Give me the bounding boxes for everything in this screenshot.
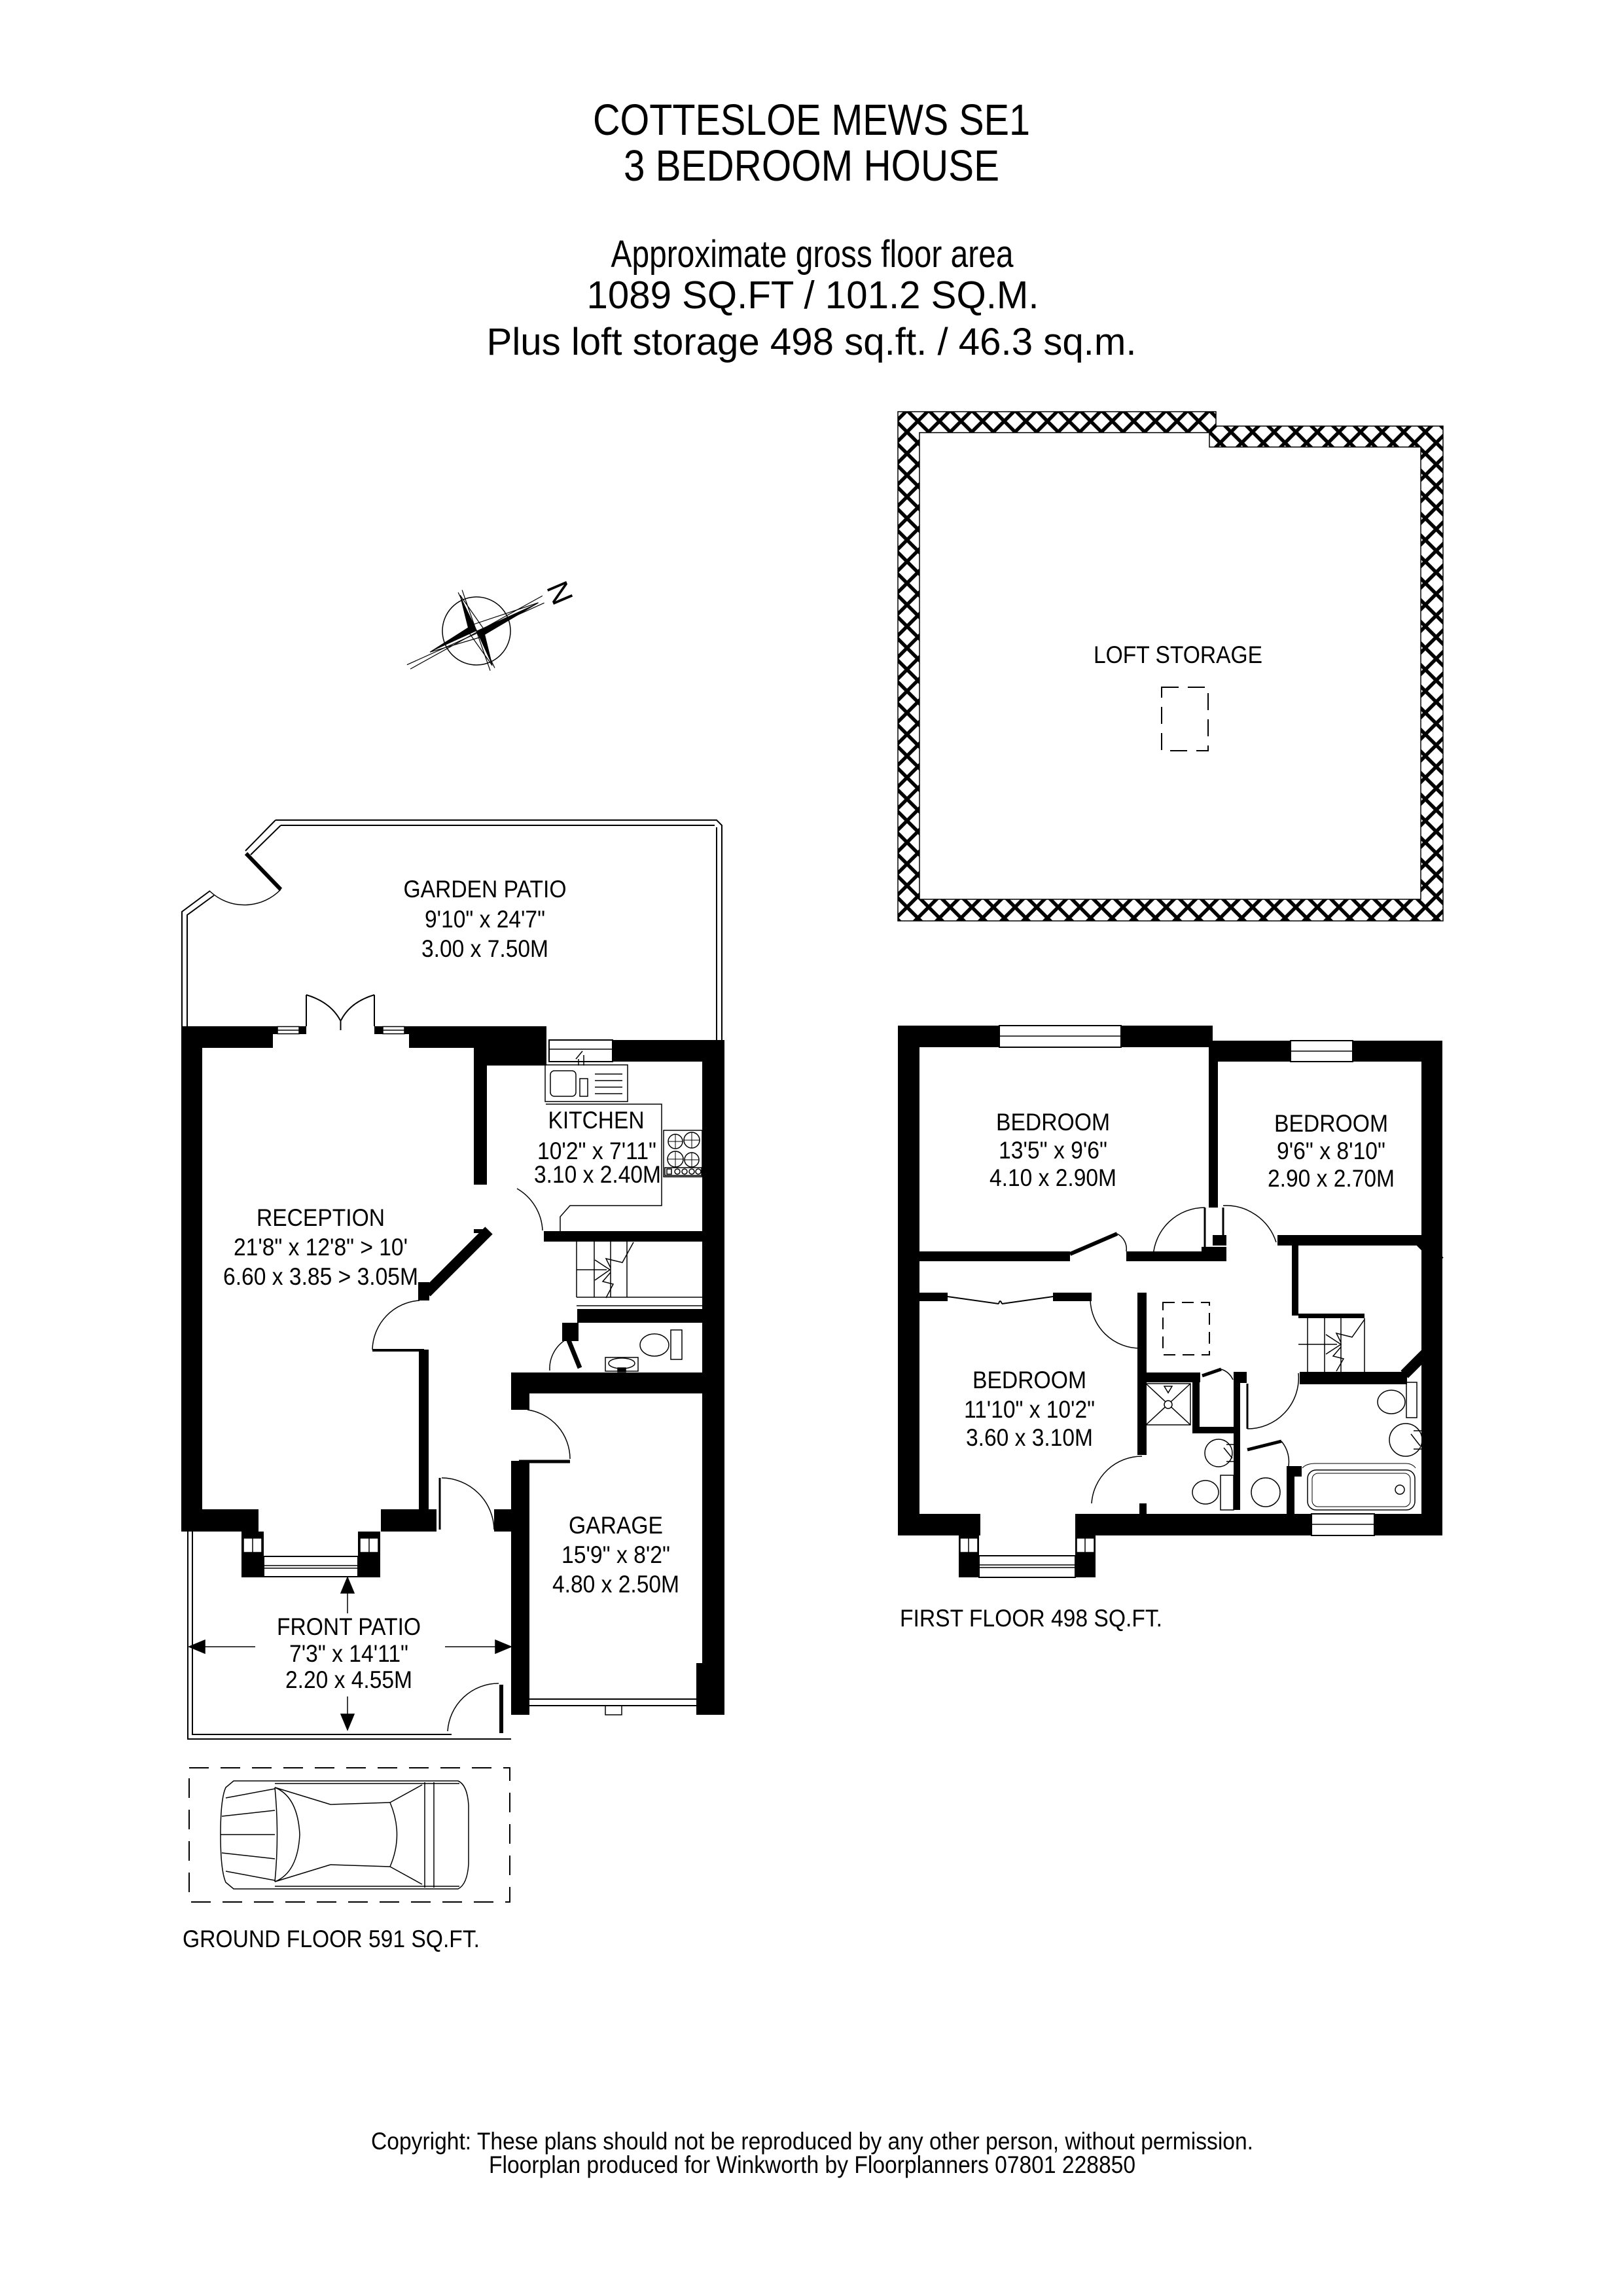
- svg-text:BEDROOM: BEDROOM: [972, 1366, 1086, 1393]
- svg-text:3.60 x 3.10M: 3.60 x 3.10M: [966, 1424, 1093, 1451]
- svg-text:3.00 x 7.50M: 3.00 x 7.50M: [421, 935, 548, 962]
- svg-text:COTTESLOE MEWS SE1: COTTESLOE MEWS SE1: [593, 96, 1030, 145]
- svg-text:13'5" x 9'6": 13'5" x 9'6": [999, 1136, 1107, 1164]
- svg-text:BEDROOM: BEDROOM: [996, 1108, 1110, 1136]
- svg-text:1089 SQ.FT / 101.2 SQ.M.: 1089 SQ.FT / 101.2 SQ.M.: [587, 273, 1039, 317]
- svg-text:3 BEDROOM HOUSE: 3 BEDROOM HOUSE: [624, 141, 999, 190]
- svg-text:2.20 x 4.55M: 2.20 x 4.55M: [285, 1666, 412, 1693]
- svg-text:9'10" x 24'7": 9'10" x 24'7": [425, 905, 545, 933]
- svg-text:6.60 x 3.85 > 3.05M: 6.60 x 3.85 > 3.05M: [223, 1263, 418, 1290]
- svg-text:21'8" x 12'8" > 10': 21'8" x 12'8" > 10': [234, 1233, 408, 1261]
- svg-text:RECEPTION: RECEPTION: [257, 1204, 385, 1231]
- svg-text:11'10" x 10'2": 11'10" x 10'2": [964, 1395, 1095, 1423]
- svg-text:3.10 x 2.40M: 3.10 x 2.40M: [534, 1160, 661, 1188]
- svg-text:BEDROOM: BEDROOM: [1274, 1109, 1388, 1137]
- svg-text:9'6" x 8'10": 9'6" x 8'10": [1277, 1137, 1385, 1164]
- svg-text:Plus loft storage 498 sq.ft. /: Plus loft storage 498 sq.ft. / 46.3 sq.m…: [487, 321, 1137, 363]
- svg-text:7'3" x 14'11": 7'3" x 14'11": [289, 1640, 408, 1667]
- svg-text:GARDEN PATIO: GARDEN PATIO: [404, 875, 567, 903]
- svg-text:4.10 x 2.90M: 4.10 x 2.90M: [990, 1164, 1116, 1191]
- svg-text:4.80 x 2.50M: 4.80 x 2.50M: [552, 1570, 679, 1598]
- svg-text:GROUND FLOOR 591 SQ.FT.: GROUND FLOOR 591 SQ.FT.: [183, 1925, 480, 1952]
- svg-text:KITCHEN: KITCHEN: [548, 1106, 645, 1134]
- svg-text:LOFT STORAGE: LOFT STORAGE: [1094, 641, 1262, 668]
- svg-text:FRONT PATIO: FRONT PATIO: [277, 1613, 421, 1640]
- svg-text:Approximate gross floor area: Approximate gross floor area: [611, 233, 1014, 276]
- svg-text:GARAGE: GARAGE: [569, 1511, 663, 1539]
- svg-text:Floorplan produced for Winkwor: Floorplan produced for Winkworth by Floo…: [489, 2151, 1135, 2178]
- svg-text:15'9" x 8'2": 15'9" x 8'2": [562, 1541, 670, 1568]
- svg-text:2.90 x 2.70M: 2.90 x 2.70M: [1268, 1164, 1395, 1192]
- svg-text:FIRST FLOOR 498 SQ.FT.: FIRST FLOOR 498 SQ.FT.: [900, 1604, 1162, 1632]
